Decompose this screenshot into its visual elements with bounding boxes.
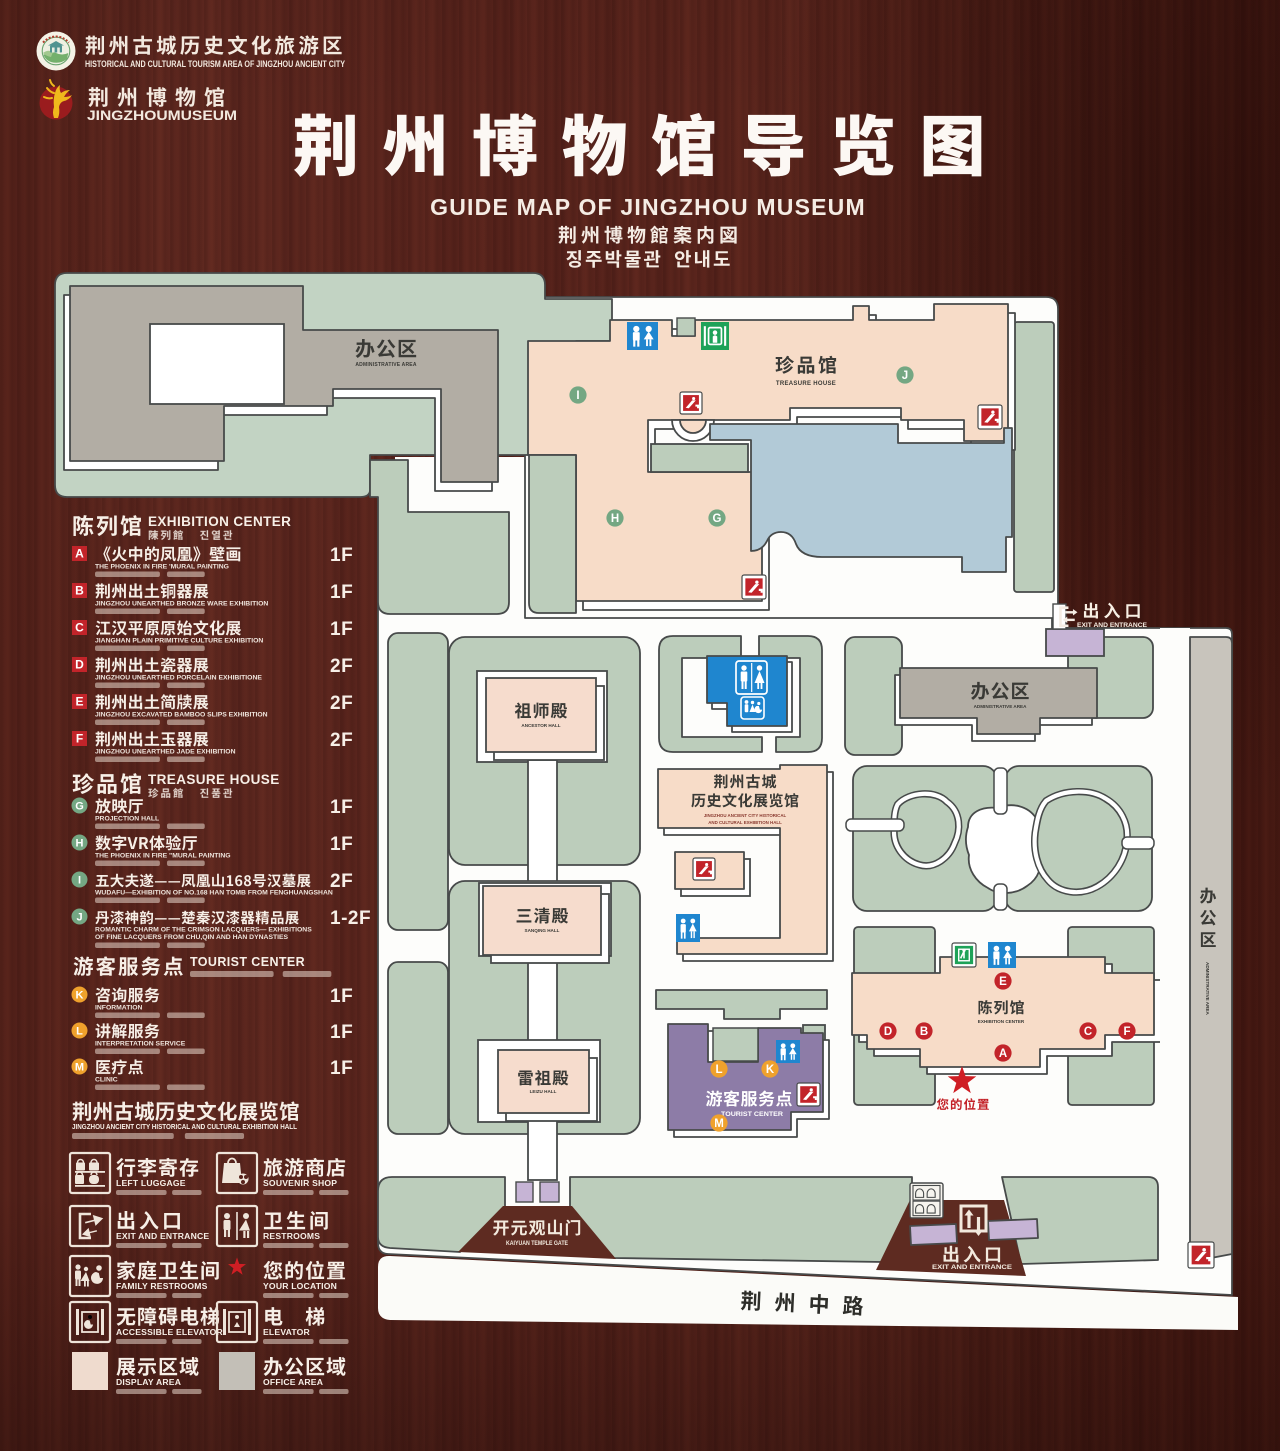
- svg-text:ACCESSIBLE ELEVATOR: ACCESSIBLE ELEVATOR: [116, 1327, 224, 1337]
- svg-text:H: H: [611, 513, 619, 525]
- svg-text:GUIDE MAP OF JINGZHOU MUSEUM: GUIDE MAP OF JINGZHOU MUSEUM: [430, 194, 866, 220]
- svg-text:J: J: [902, 370, 908, 382]
- svg-text:RESTROOMS: RESTROOMS: [263, 1231, 320, 1241]
- svg-text:EXIT AND ENTRANCE: EXIT AND ENTRANCE: [1077, 622, 1148, 629]
- svg-text:ADMINISTRATIVE AREA: ADMINISTRATIVE AREA: [1205, 962, 1210, 1016]
- svg-text:OF FINE LACQUERS FROM CHU,QIN: OF FINE LACQUERS FROM CHU,QIN AND HAN DY…: [95, 934, 289, 941]
- svg-text:H: H: [76, 837, 84, 849]
- svg-text:LEIZU HALL: LEIZU HALL: [530, 1089, 557, 1094]
- svg-text:C: C: [75, 621, 84, 635]
- svg-text:D: D: [884, 1026, 892, 1038]
- svg-text:E: E: [999, 976, 1007, 988]
- svg-text:B: B: [920, 1026, 928, 1038]
- svg-text:1F: 1F: [330, 582, 353, 603]
- svg-text:JINGZHOU UNEARTHED PORCELAIN E: JINGZHOU UNEARTHED PORCELAIN EXHIBITIONE: [95, 675, 262, 682]
- svg-text:LEFT LUGGAGE: LEFT LUGGAGE: [116, 1178, 186, 1188]
- svg-text:INFORMATION: INFORMATION: [95, 1005, 143, 1012]
- svg-text:INTERPRETATION SERVICE: INTERPRETATION SERVICE: [95, 1041, 186, 1048]
- svg-text:JINGZHOU UNEARTHED JADE EXHIBI: JINGZHOU UNEARTHED JADE EXHIBITION: [95, 749, 236, 756]
- svg-text:M: M: [714, 1118, 724, 1130]
- svg-text:K: K: [766, 1064, 775, 1076]
- svg-text:JINGZHOU UNEARTHED BRONZE WARE: JINGZHOU UNEARTHED BRONZE WARE EXHIBITIO…: [95, 601, 268, 608]
- svg-text:ANCESTOR HALL: ANCESTOR HALL: [521, 723, 560, 728]
- svg-text:G: G: [75, 800, 84, 812]
- svg-text:EXHIBITION CENTER: EXHIBITION CENTER: [978, 1019, 1025, 1024]
- svg-text:1F: 1F: [330, 834, 353, 855]
- svg-text:B: B: [75, 584, 84, 598]
- svg-text:D: D: [75, 658, 84, 672]
- svg-text:TOURIST CENTER: TOURIST CENTER: [721, 1111, 784, 1118]
- svg-text:A: A: [75, 547, 84, 561]
- svg-text:TREASURE HOUSE: TREASURE HOUSE: [776, 381, 836, 387]
- svg-text:EXIT AND ENTRANCE: EXIT AND ENTRANCE: [116, 1231, 209, 1241]
- svg-text:THE PHOENIX IN FIRE 'MURAL PAI: THE PHOENIX IN FIRE 'MURAL PAINTING: [95, 564, 229, 571]
- svg-text:2F: 2F: [330, 693, 353, 714]
- svg-text:KAIYUAN TEMPLE GATE: KAIYUAN TEMPLE GATE: [506, 1241, 568, 1247]
- svg-text:J: J: [76, 911, 82, 923]
- svg-text:JINGZHOUMUSEUM: JINGZHOUMUSEUM: [87, 107, 237, 123]
- svg-text:2F: 2F: [330, 871, 353, 892]
- svg-text:G: G: [713, 513, 722, 525]
- svg-text:EXIT AND ENTRANCE: EXIT AND ENTRANCE: [932, 1264, 1013, 1271]
- svg-text:I: I: [576, 390, 579, 402]
- svg-text:L: L: [715, 1064, 722, 1076]
- svg-text:L: L: [76, 1025, 83, 1037]
- svg-text:I: I: [78, 874, 81, 886]
- svg-text:F: F: [76, 732, 83, 746]
- svg-text:ELEVATOR: ELEVATOR: [263, 1327, 311, 1337]
- svg-text:JINGZHOU ANCIENT CITY HISTORIC: JINGZHOU ANCIENT CITY HISTORICAL AND CUL…: [72, 1122, 298, 1131]
- svg-text:EXHIBITION CENTER: EXHIBITION CENTER: [148, 514, 291, 529]
- svg-text:DISPLAY AREA: DISPLAY AREA: [116, 1377, 181, 1387]
- svg-text:K: K: [76, 989, 84, 1001]
- svg-text:ADMINISTRATIVE AREA: ADMINISTRATIVE AREA: [355, 362, 416, 368]
- svg-text:1-2F: 1-2F: [330, 908, 371, 929]
- svg-text:1F: 1F: [330, 619, 353, 640]
- svg-text:WUDAFU—EXHIBITION OF NO.168 HA: WUDAFU—EXHIBITION OF NO.168 HAN TOMB FRO…: [95, 890, 333, 897]
- svg-text:JINGZHOU EXCAVATED BAMBOO SLIP: JINGZHOU EXCAVATED BAMBOO SLIPS EXHIBITI…: [95, 712, 268, 719]
- svg-text:HISTORICAL AND CULTURAL TOURIS: HISTORICAL AND CULTURAL TOURISM AREA OF …: [85, 59, 346, 69]
- svg-text:F: F: [1123, 1026, 1130, 1038]
- svg-text:FAMILY RESTROOMS: FAMILY RESTROOMS: [116, 1281, 208, 1291]
- svg-text:2F: 2F: [330, 656, 353, 677]
- svg-text:YOUR LOCATION: YOUR LOCATION: [263, 1281, 337, 1291]
- svg-text:JINGZHOU ANCIENT CITY HISTORIC: JINGZHOU ANCIENT CITY HISTORICAL: [704, 813, 787, 818]
- svg-text:2F: 2F: [330, 730, 353, 751]
- svg-text:1F: 1F: [330, 1022, 353, 1043]
- svg-text:TREASURE HOUSE: TREASURE HOUSE: [148, 772, 280, 787]
- svg-text:CLINIC: CLINIC: [95, 1077, 118, 1084]
- svg-text:ROMANTIC CHARM OF THE CRIMSON: ROMANTIC CHARM OF THE CRIMSON LACQUERS— …: [95, 927, 312, 934]
- svg-text:TOURIST CENTER: TOURIST CENTER: [190, 955, 305, 969]
- svg-text:1F: 1F: [330, 986, 353, 1007]
- svg-text:M: M: [75, 1061, 84, 1073]
- svg-text:PROJECTION HALL: PROJECTION HALL: [95, 816, 159, 823]
- svg-text:1F: 1F: [330, 1058, 353, 1079]
- svg-text:THE PHOENIX IN FIRE "MURAL PAI: THE PHOENIX IN FIRE "MURAL PAINTING: [95, 853, 231, 860]
- svg-text:1F: 1F: [330, 545, 353, 566]
- svg-text:C: C: [1084, 1026, 1092, 1038]
- svg-text:AND CULTURAL EXHIBITION HALL: AND CULTURAL EXHIBITION HALL: [708, 820, 782, 825]
- svg-text:ADMINISTRATIVE AREA: ADMINISTRATIVE AREA: [974, 704, 1028, 709]
- svg-text:OFFICE AREA: OFFICE AREA: [263, 1377, 323, 1387]
- svg-text:SOUVENIR SHOP: SOUVENIR SHOP: [263, 1178, 337, 1188]
- svg-text:E: E: [75, 695, 83, 709]
- svg-text:SANQING HALL: SANQING HALL: [525, 928, 560, 933]
- svg-text:A: A: [999, 1048, 1007, 1060]
- svg-text:JIANGHAN PLAIN PRIMITIVE CULTU: JIANGHAN PLAIN PRIMITIVE CULTURE EXHIBIT…: [95, 638, 263, 645]
- svg-text:1F: 1F: [330, 797, 353, 818]
